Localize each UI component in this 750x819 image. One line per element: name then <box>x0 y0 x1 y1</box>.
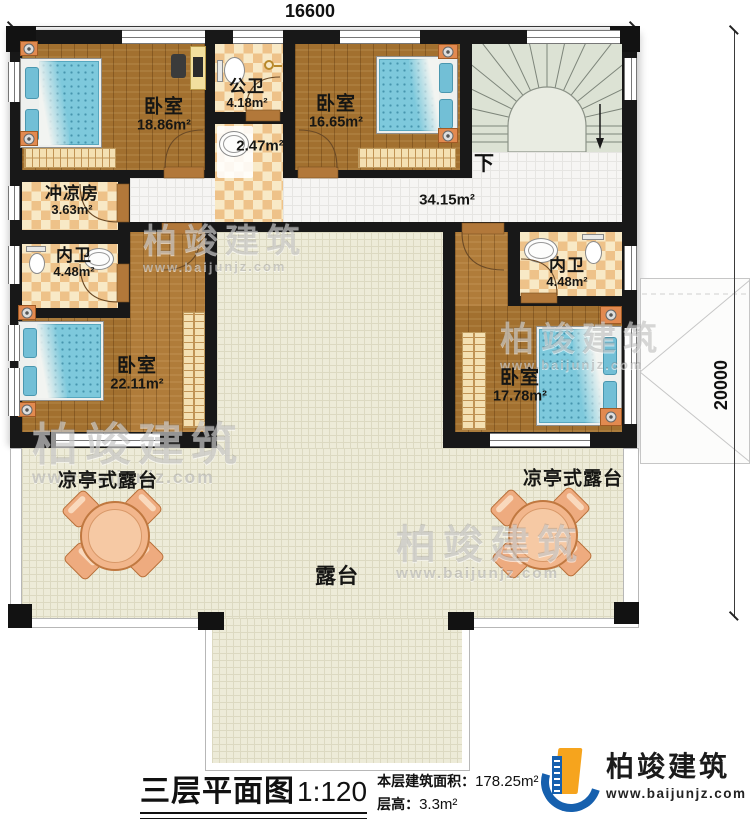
floor-area-label: 本层建筑面积： <box>377 773 475 789</box>
logo-company-name: 柏竣建筑 <box>606 745 747 785</box>
window <box>624 58 637 100</box>
logo-website: www.baijunjz.com <box>606 786 747 801</box>
door-arcs <box>0 0 750 819</box>
title-underline <box>140 812 367 819</box>
pavilion-terrace-label-right: 凉亭式露台 <box>523 468 623 489</box>
plan-info: 本层建筑面积：178.25m² 层高：3.3m² <box>377 766 538 817</box>
room-label-bedroom-top-right: 卧室16.65m² <box>309 93 363 131</box>
floor-height-value: 3.3m² <box>419 796 457 813</box>
logo-text: 柏竣建筑 www.baijunjz.com <box>606 745 747 801</box>
company-logo: 柏竣建筑 www.baijunjz.com <box>540 742 747 804</box>
stairs-direction-label: 下 <box>474 147 494 176</box>
hallway-area-label: 34.15m² <box>419 193 475 210</box>
room-label-ensuite-right: 内卫4.48m² <box>546 256 587 290</box>
plan-title-text: 三层平面图 <box>140 775 295 808</box>
window <box>8 325 20 361</box>
room-label-bedroom-top-left: 卧室18.86m² <box>137 96 191 134</box>
window <box>624 246 637 290</box>
terrace-label: 露台 <box>315 565 359 589</box>
floor-area-value: 178.25m² <box>475 773 538 790</box>
logo-building-icon <box>540 742 598 804</box>
watermark: 柏竣建筑www.baijunjz.com <box>143 224 307 273</box>
room-label-shower-room: 冲凉房3.63m² <box>45 184 99 218</box>
window <box>340 30 420 44</box>
window <box>8 246 20 284</box>
room-label-public-bath: 公卫4.18m² <box>226 77 267 111</box>
room-label-washroom: 2.47m² <box>236 139 284 156</box>
room-label-bedroom-mid-right: 卧室17.78m² <box>493 367 547 405</box>
pavilion-terrace-label-left: 凉亭式露台 <box>58 470 158 491</box>
logo-building-blue <box>552 756 562 794</box>
window <box>8 186 20 220</box>
window <box>8 368 20 416</box>
pavilion-table-set <box>65 486 161 582</box>
plant-icon <box>104 525 126 547</box>
window <box>233 30 283 44</box>
plan-title: 三层平面图1:120 <box>140 766 367 819</box>
floor-plan-canvas: 16600 <box>0 0 750 819</box>
round-table <box>80 501 150 571</box>
room-label-ensuite-left: 内卫4.48m² <box>53 246 94 280</box>
floor-height-label: 层高： <box>377 796 419 812</box>
title-block: 三层平面图1:120 本层建筑面积：178.25m² 层高：3.3m² <box>140 766 538 819</box>
watermark: 柏竣建筑www.baijunjz.com <box>500 322 664 371</box>
room-label-bedroom-mid-left: 卧室22.11m² <box>110 355 163 393</box>
window <box>122 30 205 44</box>
window <box>8 62 20 102</box>
plan-scale: 1:120 <box>297 776 367 807</box>
window <box>490 433 590 447</box>
watermark: 柏竣建筑www.baijunjz.com <box>396 524 584 582</box>
window <box>527 30 620 44</box>
